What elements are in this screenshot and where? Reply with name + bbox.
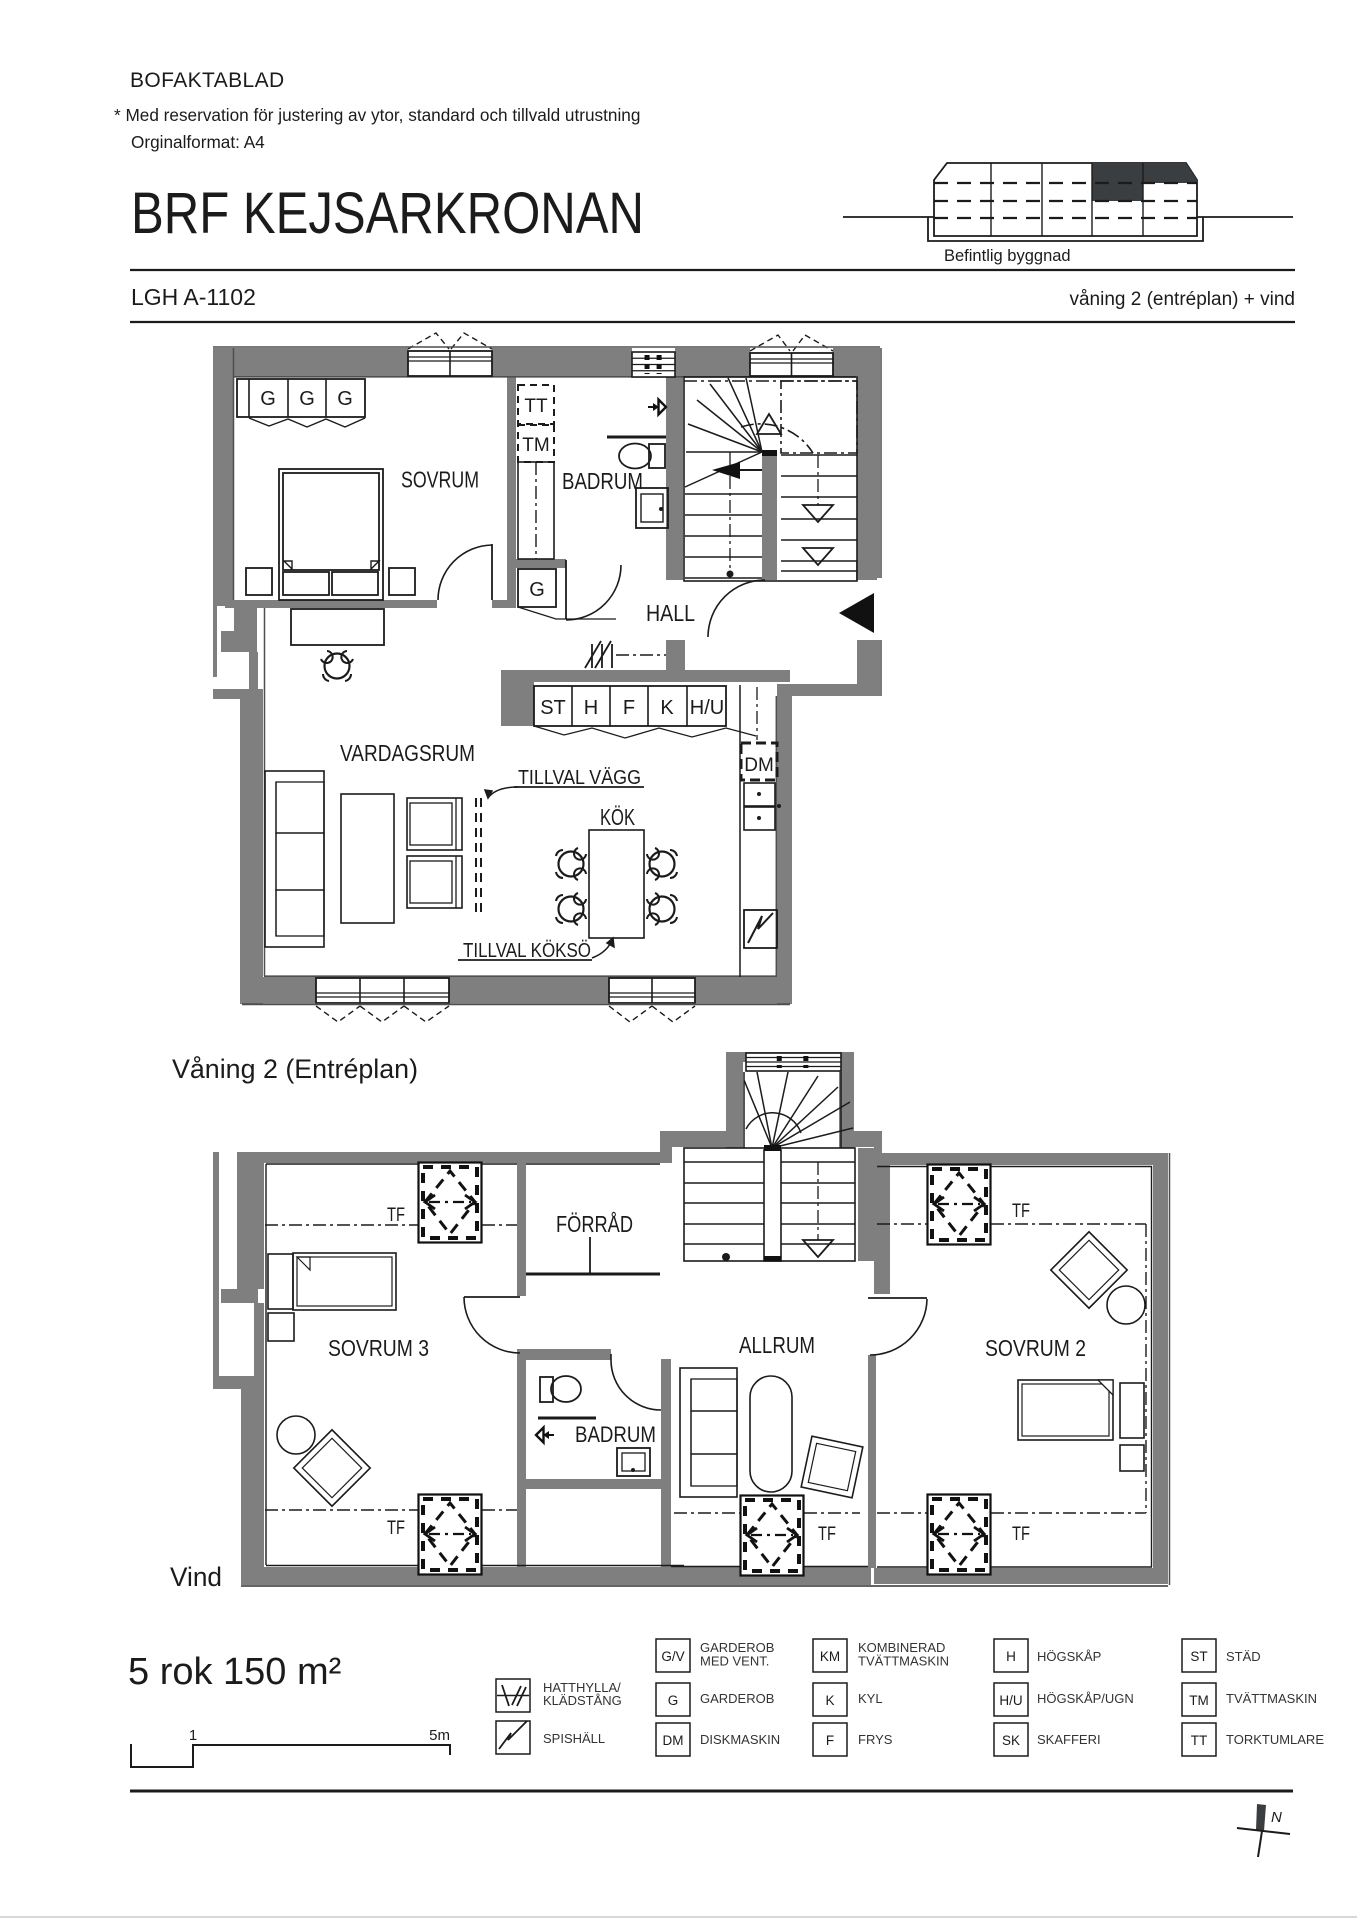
svg-text:FRYS: FRYS xyxy=(858,1732,893,1747)
svg-text:TT: TT xyxy=(524,396,548,417)
svg-text:TT: TT xyxy=(1191,1733,1208,1748)
svg-text:SPISHÄLL: SPISHÄLL xyxy=(543,1731,605,1746)
svg-text:HÖGSKÅP: HÖGSKÅP xyxy=(1037,1649,1101,1664)
svg-text:Vind: Vind xyxy=(170,1562,222,1592)
svg-text:SKAFFERI: SKAFFERI xyxy=(1037,1732,1101,1747)
svg-text:F: F xyxy=(826,1733,834,1748)
svg-text:G: G xyxy=(337,388,353,410)
svg-text:SOVRUM: SOVRUM xyxy=(401,467,479,493)
svg-text:KLÄDSTÅNG: KLÄDSTÅNG xyxy=(543,1693,622,1708)
svg-text:G: G xyxy=(299,388,315,410)
svg-text:ST: ST xyxy=(540,697,566,719)
svg-text:TVÄTTMASKIN: TVÄTTMASKIN xyxy=(858,1654,949,1669)
svg-text:1: 1 xyxy=(189,1727,197,1744)
svg-text:SOVRUM 3: SOVRUM 3 xyxy=(328,1335,429,1361)
svg-text:TF: TF xyxy=(818,1524,836,1545)
svg-text:TF: TF xyxy=(387,1518,405,1539)
svg-text:TM: TM xyxy=(1189,1693,1209,1708)
svg-text:TORKTUMLARE: TORKTUMLARE xyxy=(1226,1732,1324,1747)
svg-text:DM: DM xyxy=(744,755,774,776)
svg-text:TF: TF xyxy=(1012,1524,1030,1545)
svg-text:våning 2 (entréplan) + vind: våning 2 (entréplan) + vind xyxy=(1069,289,1295,310)
svg-text:KYL: KYL xyxy=(858,1691,883,1706)
svg-text:KM: KM xyxy=(820,1649,840,1664)
svg-text:F: F xyxy=(623,697,635,719)
svg-text:KÖK: KÖK xyxy=(600,804,635,830)
svg-text:Befintlig byggnad: Befintlig byggnad xyxy=(944,247,1071,265)
svg-text:H: H xyxy=(584,697,598,719)
svg-text:* Med reservation för justerin: * Med reservation för justering av ytor,… xyxy=(114,105,640,125)
svg-text:DISKMASKIN: DISKMASKIN xyxy=(700,1732,780,1747)
svg-text:VARDAGSRUM: VARDAGSRUM xyxy=(340,740,475,766)
svg-text:ALLRUM: ALLRUM xyxy=(739,1332,815,1358)
svg-text:Våning 2 (Entréplan): Våning 2 (Entréplan) xyxy=(172,1054,418,1084)
svg-text:FÖRRÅD: FÖRRÅD xyxy=(556,1210,633,1237)
svg-text:BADRUM: BADRUM xyxy=(575,1422,656,1447)
svg-text:G: G xyxy=(529,579,545,601)
svg-text:5 rok 150 m²: 5 rok 150 m² xyxy=(128,1651,341,1693)
svg-text:G/V: G/V xyxy=(661,1649,684,1664)
svg-text:ST: ST xyxy=(1190,1649,1207,1664)
svg-text:N: N xyxy=(1271,1809,1282,1826)
svg-text:SK: SK xyxy=(1002,1733,1020,1748)
svg-text:STÄD: STÄD xyxy=(1226,1649,1261,1664)
svg-text:H/U: H/U xyxy=(999,1693,1022,1708)
svg-text:GARDEROB: GARDEROB xyxy=(700,1691,774,1706)
svg-text:K: K xyxy=(825,1693,834,1708)
svg-text:LGH A-1102: LGH A-1102 xyxy=(131,284,256,310)
svg-text:TM: TM xyxy=(522,435,549,456)
svg-text:TVÄTTMASKIN: TVÄTTMASKIN xyxy=(1226,1691,1317,1706)
svg-text:DM: DM xyxy=(663,1733,684,1748)
svg-text:SOVRUM 2: SOVRUM 2 xyxy=(985,1335,1086,1361)
svg-text:TF: TF xyxy=(1012,1201,1030,1222)
svg-text:MED VENT.: MED VENT. xyxy=(700,1654,769,1669)
svg-text:5m: 5m xyxy=(429,1727,450,1744)
svg-text:BADRUM: BADRUM xyxy=(562,468,643,494)
svg-text:H/U: H/U xyxy=(690,697,724,719)
svg-text:H: H xyxy=(1006,1649,1016,1664)
svg-text:BOFAKTABLAD: BOFAKTABLAD xyxy=(130,69,285,92)
svg-text:TILLVAL KÖKSÖ: TILLVAL KÖKSÖ xyxy=(463,940,591,962)
svg-text:HALL: HALL xyxy=(646,600,695,626)
svg-text:TF: TF xyxy=(387,1205,405,1226)
svg-text:G: G xyxy=(260,388,276,410)
svg-text:Orginalformat: A4: Orginalformat: A4 xyxy=(131,132,265,152)
svg-text:HÖGSKÅP/UGN: HÖGSKÅP/UGN xyxy=(1037,1691,1134,1706)
svg-text:K: K xyxy=(660,697,674,719)
svg-text:G: G xyxy=(668,1693,679,1708)
svg-text:TILLVAL VÄGG: TILLVAL VÄGG xyxy=(518,767,641,789)
svg-text:BRF KEJSARKRONAN: BRF KEJSARKRONAN xyxy=(131,181,644,246)
